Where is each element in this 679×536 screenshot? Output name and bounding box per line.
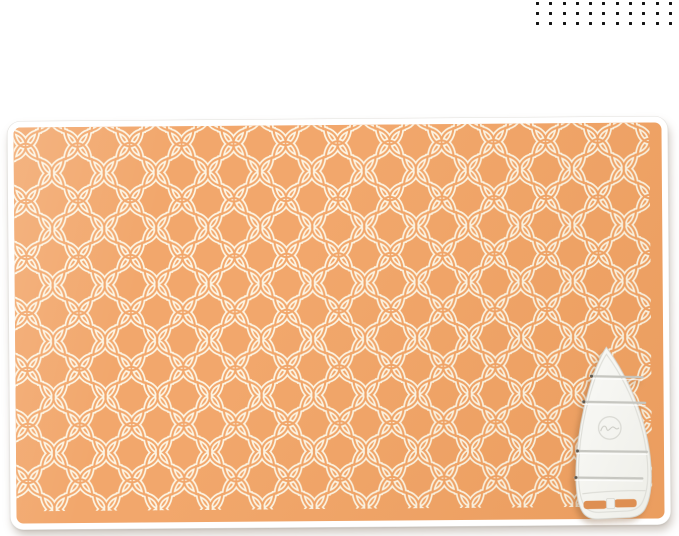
iron-rest-slot-tab — [606, 498, 614, 508]
dot — [536, 2, 539, 5]
dot — [589, 22, 592, 25]
dot — [656, 22, 659, 25]
iron-rest — [565, 340, 662, 530]
dot — [589, 2, 592, 5]
dot — [576, 2, 579, 5]
dot — [549, 12, 552, 15]
dot — [549, 22, 552, 25]
dot — [589, 12, 592, 15]
dot — [669, 2, 672, 5]
dot — [616, 22, 619, 25]
dot — [576, 12, 579, 15]
dot — [602, 2, 605, 5]
dot — [642, 12, 645, 15]
dot — [629, 12, 632, 15]
dot — [563, 2, 566, 5]
product-photo-canvas — [0, 0, 679, 536]
dot — [669, 12, 672, 15]
dot — [656, 2, 659, 5]
dot — [616, 12, 619, 15]
dot — [563, 22, 566, 25]
dot — [642, 22, 645, 25]
dot — [536, 22, 539, 25]
dot — [563, 12, 566, 15]
dot — [629, 22, 632, 25]
dot — [536, 12, 539, 15]
dot — [616, 2, 619, 5]
dot — [669, 22, 672, 25]
dot — [602, 22, 605, 25]
dot — [602, 12, 605, 15]
dot — [642, 2, 645, 5]
dot-grid-decoration — [536, 2, 672, 25]
dot — [629, 2, 632, 5]
dot — [656, 12, 659, 15]
dot — [576, 22, 579, 25]
quatrefoil-pattern — [13, 123, 652, 512]
dot — [549, 2, 552, 5]
